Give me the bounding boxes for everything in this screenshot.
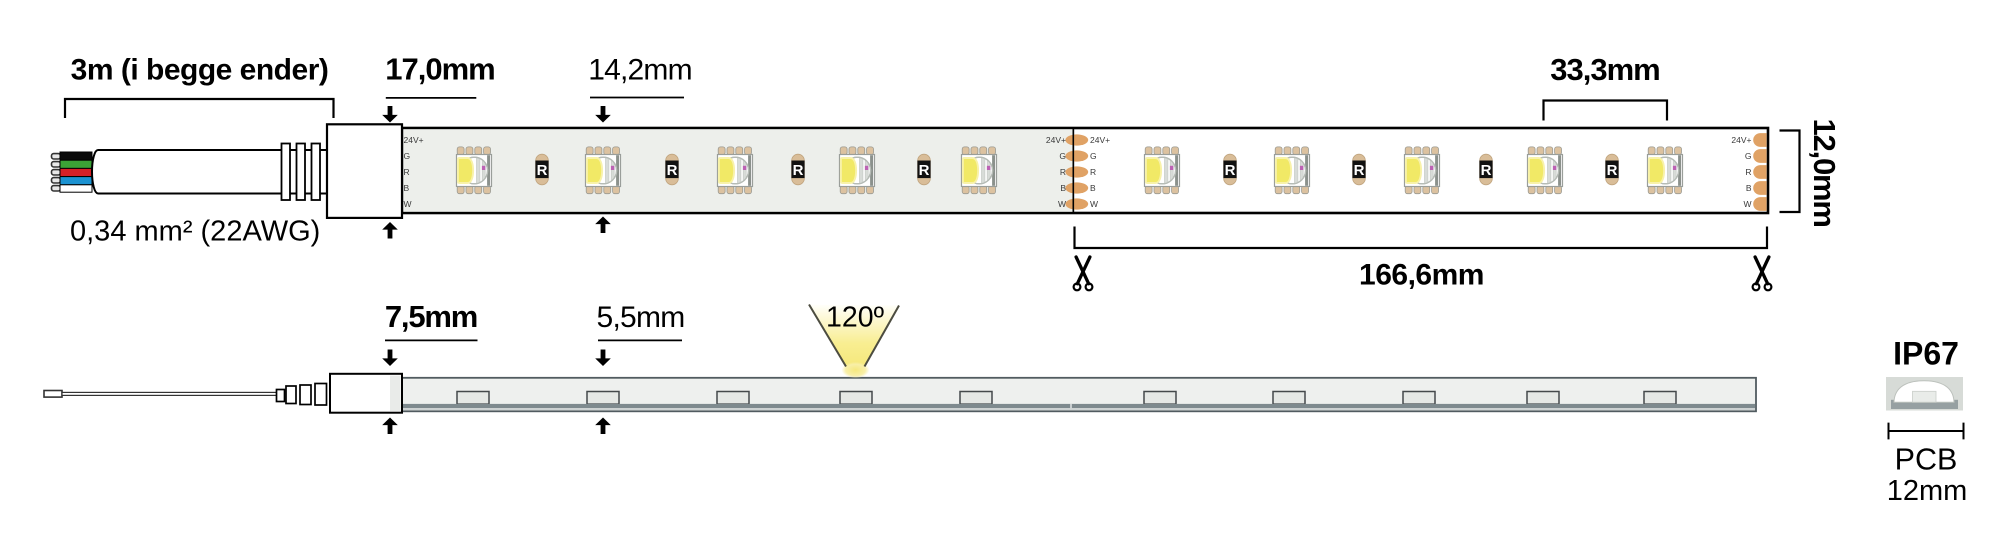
svg-text:166,6mm: 166,6mm <box>1359 258 1484 291</box>
svg-text:120º: 120º <box>826 302 885 334</box>
svg-text:12mm: 12mm <box>1887 475 1968 507</box>
svg-text:12,0mm: 12,0mm <box>1807 119 1842 227</box>
svg-text:0,34 mm² (22AWG): 0,34 mm² (22AWG) <box>70 216 320 248</box>
svg-text:PCB: PCB <box>1895 443 1958 477</box>
svg-text:33,3mm: 33,3mm <box>1550 52 1659 87</box>
svg-text:3m (i begge ender): 3m (i begge ender) <box>71 54 329 87</box>
svg-text:17,0mm: 17,0mm <box>385 51 494 86</box>
svg-text:14,2mm: 14,2mm <box>588 53 692 86</box>
svg-text:5,5mm: 5,5mm <box>597 301 685 334</box>
svg-text:7,5mm: 7,5mm <box>385 299 477 334</box>
svg-text:IP67: IP67 <box>1893 335 1959 371</box>
